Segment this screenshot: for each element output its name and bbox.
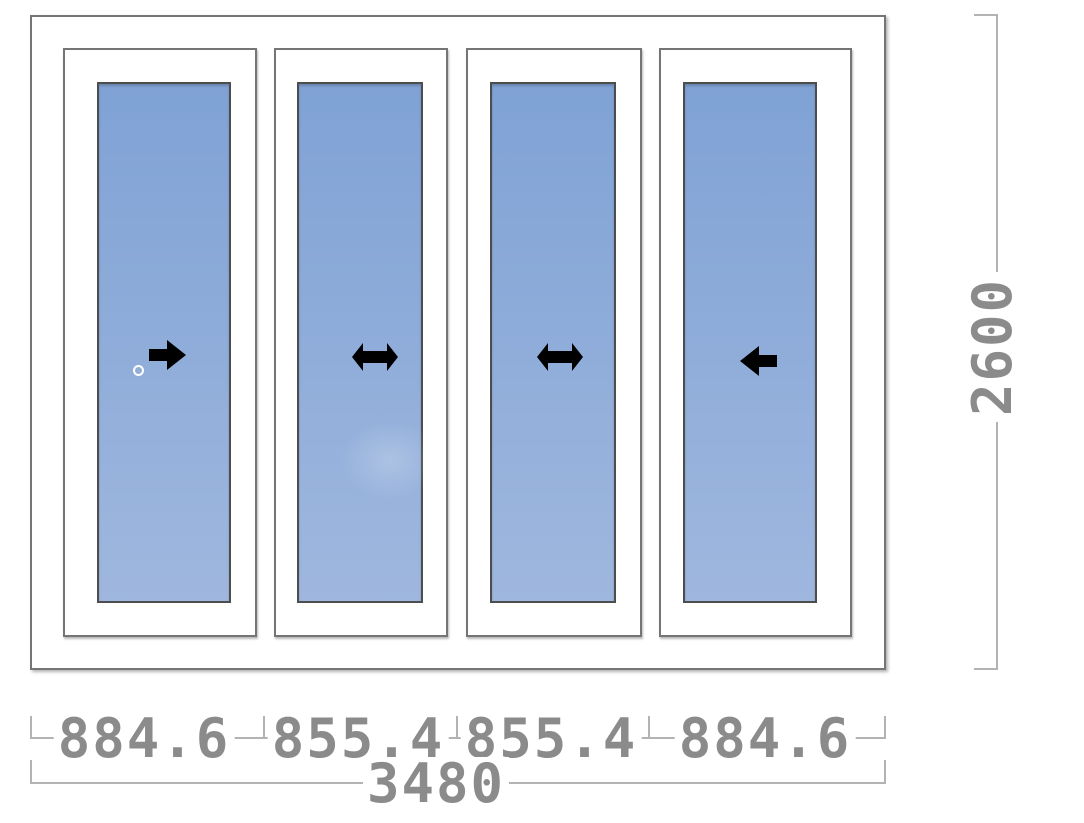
handle-indicator	[133, 365, 144, 376]
dim-tick	[456, 716, 458, 739]
dim-tick	[30, 716, 32, 739]
dim-tick	[263, 716, 265, 739]
arrow-left-icon	[740, 344, 777, 378]
window-configuration-diagram: 884.6 855.4 855.4 884.6 3480 2600	[0, 0, 1084, 823]
glass-reflection	[340, 420, 440, 500]
arrow-left-right-icon	[537, 341, 583, 373]
arrow-right-icon	[149, 338, 186, 372]
panel-1-width-label: 884.6	[54, 712, 235, 766]
dim-tick	[884, 760, 886, 784]
dim-tick	[648, 716, 650, 739]
glass-pane-4	[683, 82, 817, 603]
total-width-label: 3480	[363, 757, 509, 811]
dim-tick	[974, 14, 998, 16]
panel-4-width-label: 884.6	[675, 712, 856, 766]
dim-tick	[974, 668, 998, 670]
dim-tick	[30, 760, 32, 784]
arrow-left-right-icon	[352, 341, 398, 373]
height-label: 2600	[964, 272, 1022, 422]
dim-tick	[884, 716, 886, 739]
